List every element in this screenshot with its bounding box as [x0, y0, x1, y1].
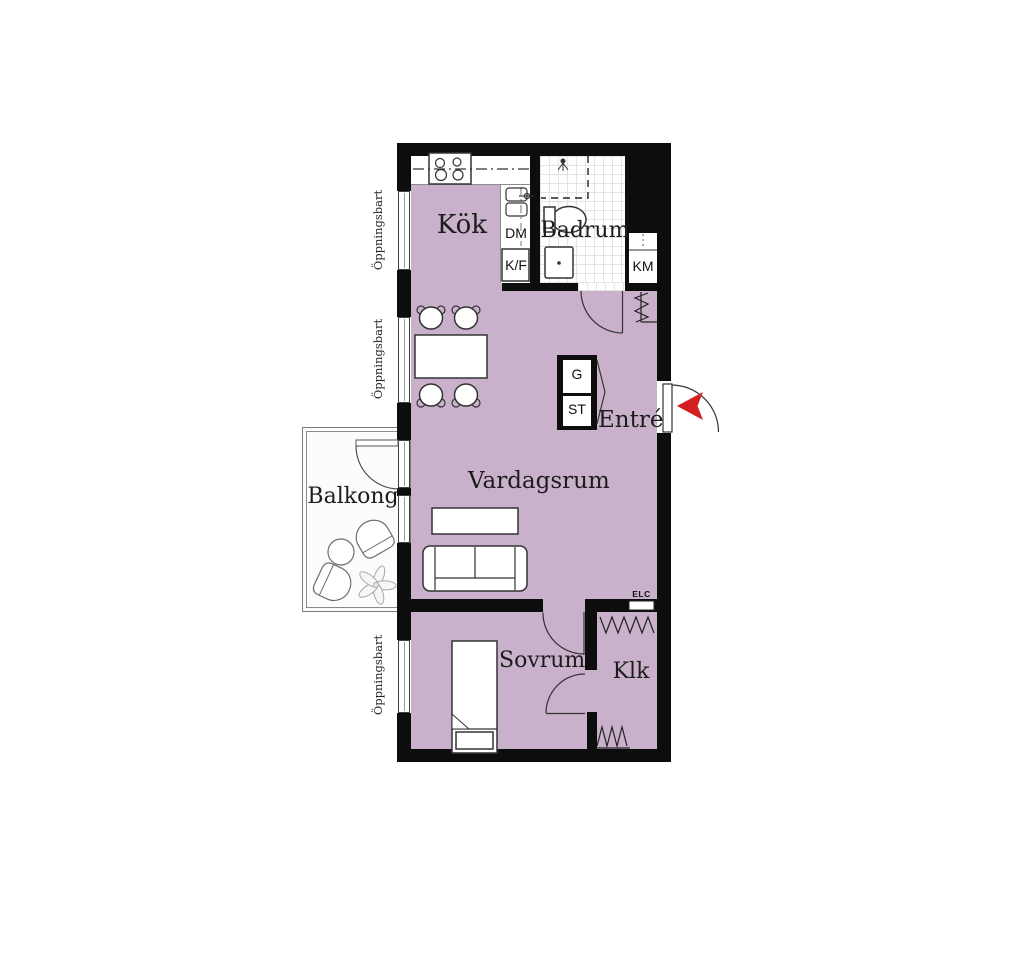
klk-door [546, 674, 585, 714]
washing-machine-lines [629, 234, 657, 250]
label-washing-machine: KM [629, 259, 657, 274]
label-openable-window-3: Öppningsbart [371, 620, 385, 730]
dining-table [415, 335, 487, 378]
balcony-table [328, 539, 354, 565]
coffee-table [432, 508, 518, 534]
bathroom-sink [545, 247, 573, 278]
label-dishwasher: DM [502, 226, 530, 241]
room-label-balcony: Balkong [305, 485, 401, 509]
bathroom-door [581, 291, 623, 333]
shower-icon [558, 159, 568, 171]
label-electrical: ELC [627, 590, 656, 599]
coat-rail-icon [635, 292, 657, 322]
room-label-bathroom: Badrum [540, 219, 630, 243]
dining-chair [417, 384, 445, 407]
balcony-plant [357, 565, 396, 606]
label-openable-window-1: Öppningsbart [371, 175, 385, 285]
sofa [423, 546, 527, 591]
room-label-closet: Klk [607, 660, 655, 684]
clothes-rail-icon [600, 617, 654, 633]
room-label-kitchen: Kök [430, 211, 494, 240]
clothes-rail-icon [595, 727, 630, 748]
room-label-bedroom: Sovrum [499, 649, 585, 673]
floorplan: Kök Badrum Entré Vardagsrum Balkong Sovr… [0, 0, 1024, 953]
entrance-arrow-icon [677, 392, 703, 420]
label-cleaning-st: ST [563, 402, 591, 417]
room-label-living-room: Vardagsrum [468, 469, 606, 494]
balcony-door [356, 440, 399, 489]
dining-chair [452, 306, 480, 329]
elc-box [629, 601, 654, 610]
kitchen-sink [506, 188, 534, 216]
label-openable-window-2: Öppningsbart [371, 304, 385, 414]
label-fridge-freezer: K/F [502, 258, 530, 273]
label-wardrobe-g: G [563, 367, 591, 382]
balcony-chair [311, 561, 356, 606]
dining-chair [452, 384, 480, 407]
dining-chair [417, 306, 445, 329]
balcony-chair [350, 514, 396, 560]
room-label-entrance: Entré [598, 408, 660, 433]
bed [452, 641, 497, 753]
